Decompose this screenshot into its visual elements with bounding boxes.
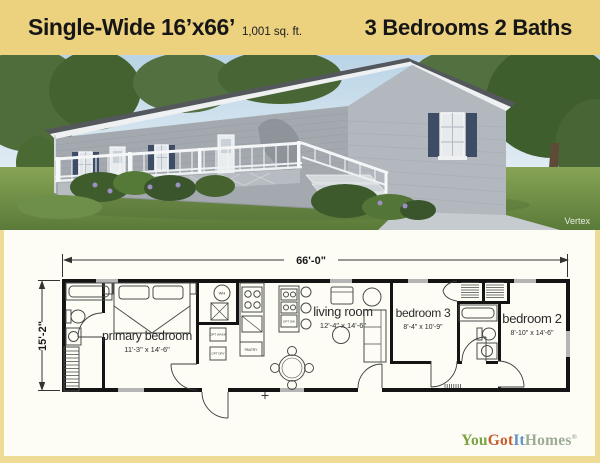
room-dims-bedroom-2: 8'-10" x 14'-6" bbox=[510, 330, 554, 337]
room-label-living-room: living room bbox=[313, 304, 373, 319]
opt-wash-label: OPT WASH bbox=[210, 333, 226, 337]
front-door bbox=[218, 135, 234, 175]
overall-depth-dimension: 15'-2" bbox=[37, 321, 49, 351]
square-footage: 1,001 sq. ft. bbox=[242, 26, 302, 38]
gable-window-with-shutters bbox=[428, 113, 477, 160]
opt-dw-label: OPT DW bbox=[283, 320, 295, 324]
logo-segment-you: You bbox=[461, 432, 487, 449]
opt-dry-label: OPT DRY bbox=[211, 352, 224, 356]
flyer-page: Single-Wide 16’x66’ 1,001 sq. ft. 3 Bedr… bbox=[0, 0, 600, 463]
window-with-shutters bbox=[148, 145, 175, 170]
window-sill bbox=[438, 156, 467, 160]
exterior-photo: Vertex bbox=[0, 55, 600, 230]
room-label-bedroom-2: bedroom 2 bbox=[502, 311, 562, 326]
room-dims-bedroom-3: 8'-4" x 10'-9" bbox=[403, 324, 443, 331]
logo-trademark: ® bbox=[572, 433, 577, 441]
header-banner: Single-Wide 16’x66’ 1,001 sq. ft. 3 Bedr… bbox=[0, 0, 600, 55]
room-label-bedroom-3: bedroom 3 bbox=[396, 306, 451, 320]
overall-width-dimension: 66'-0" bbox=[296, 255, 326, 267]
room-dims-living-room: 12'-4" x 14'-6" bbox=[320, 321, 366, 330]
wh-label: WH bbox=[219, 291, 226, 296]
yougotithomes-logo: YouGotItHomes® bbox=[461, 432, 577, 450]
pantry-label: PANTRY bbox=[245, 348, 259, 352]
logo-segment-got: Got bbox=[488, 432, 514, 449]
logo-segment-homes: Homes bbox=[525, 432, 572, 449]
room-label-primary-bedroom: primary bedroom bbox=[102, 329, 192, 343]
floorplan: 66'-0" 15'-2" bbox=[0, 230, 600, 463]
room-dims-primary-bedroom: 11'-3" x 14'-6" bbox=[124, 345, 170, 354]
model-title: Single-Wide 16’x66’ bbox=[28, 14, 235, 41]
logo-segment-it: It bbox=[513, 432, 525, 449]
beds-baths-count: 3 Bedrooms 2 Baths bbox=[365, 15, 572, 41]
photo-watermark: Vertex bbox=[564, 216, 590, 226]
